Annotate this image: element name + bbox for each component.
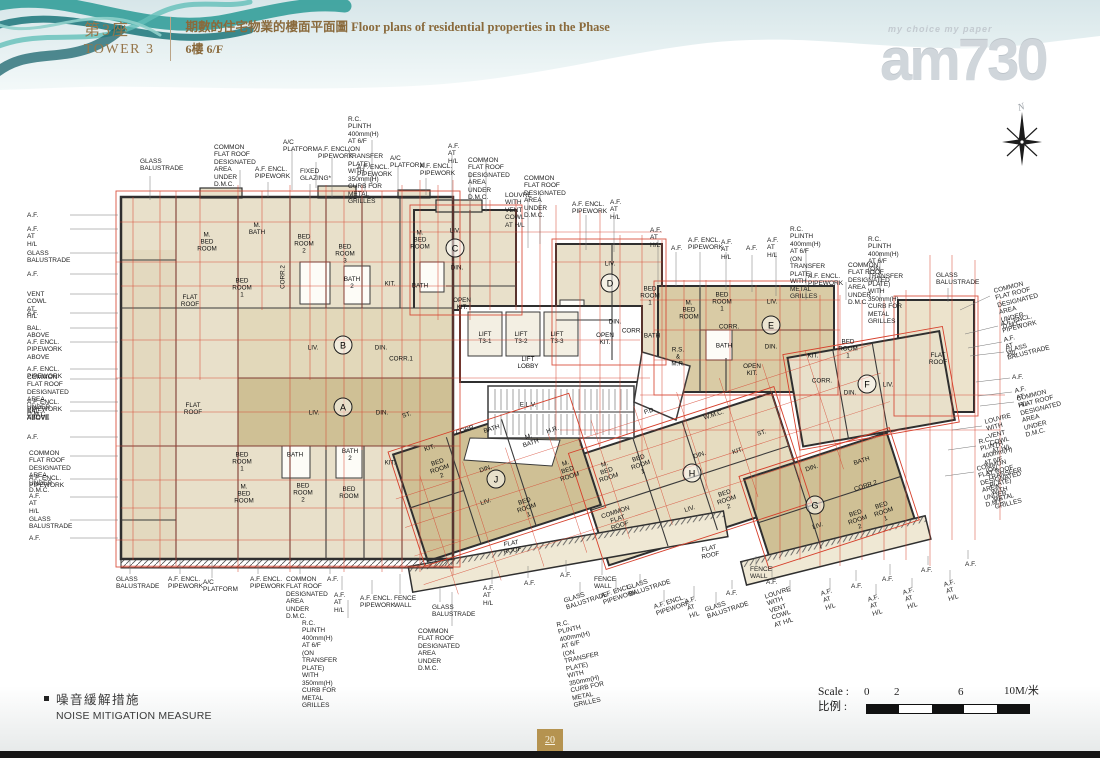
plan-callout-label: R.C. PLINTH 400mm(H) AT 6/F (ON TRANSFER… [348,116,383,206]
room-label: CORR. [719,325,739,332]
room-label: DIN. [765,345,778,352]
room-label: KIT. [808,354,819,361]
plan-callout-label: A.F. ENCL. PIPEWORK [250,576,285,591]
north-compass: N [992,108,1052,170]
noise-legend: 噪音緩解措施 NOISE MITIGATION MEASURE [44,689,212,722]
plan-callout-label: A.F. [726,590,737,597]
scale-tick: 2 [894,686,900,698]
plan-callout-label: A.F. [27,434,38,441]
scale-tick: 6 [958,686,964,698]
unit-label: A [334,398,353,417]
room-label: BED ROOM 1 [232,453,252,474]
header-divider [170,17,171,61]
room-label: DIN. [844,391,857,398]
room-label: BED ROOM 3 [335,245,355,266]
room-label: FLAT ROOF [181,295,199,309]
plan-callout-label: GLASS BALUSTRADE [116,576,159,591]
room-label: M. BATH [249,223,265,237]
unit-label: J [487,470,506,489]
plan-callout-label: COMMON FLAT ROOF DESIGNATED AREA UNDER D… [286,576,328,621]
unit-label: F [858,375,877,394]
plan-callout-label: A.F. [327,576,338,583]
unit-label: E [762,316,781,335]
legend-en: NOISE MITIGATION MEASURE [56,710,212,722]
plan-callout-label: A.F. [965,561,976,568]
plan-callout-label: A.F. [1012,374,1023,381]
unit-label: B [334,336,353,355]
room-label: M. BED ROOM [197,233,217,254]
scale-bar-segments [866,704,1030,714]
plan-callout-label: A.F. [921,567,932,574]
unit-label: C [446,239,465,258]
plan-callout-label: R.C. PLINTH 400mm(H) AT 6/F (ON TRANSFER… [302,620,337,710]
plan-callout-label: A.F. [29,535,40,542]
plan-callout-label: R.C. PLINTH 400mm(H) AT 6/F (ON TRANSFER… [790,226,825,301]
compass-star-icon [992,108,1052,170]
plan-callout-label: FENCE WALL [394,595,416,610]
room-label: BATH 2 [344,277,360,291]
plan-callout-label: BAL. ABOVE [27,408,49,423]
room-label: BED ROOM 2 [293,484,313,505]
room-label: OPEN KIT. [743,364,761,378]
room-label: R.S. & M.R. [671,348,684,369]
plan-callout-label: A.F. [882,576,893,583]
scale-tick: 0 [864,686,870,698]
brochure-page: 第3座 TOWER 3 期數的住宅物業的樓面平面圖 Floor plans of… [0,0,1100,758]
scale-bar: Scale : 0 2 6 10M/米 比例 : [818,684,1030,714]
room-label: CORR. [622,329,642,336]
plan-callout-label: A.F. ENCL. PIPEWORK [29,475,64,490]
plan-callout-label: A.F. ENCL. PIPEWORK [688,237,723,252]
room-label: BED ROOM 1 [640,287,660,308]
room-label: LIFT T3-1 [479,332,492,346]
plan-callout-label: A.F. [746,245,757,252]
plan-callout-label: A/C PLATFORM [283,139,318,154]
room-label: BATH [644,334,660,341]
plan-callout-label: A.F. [524,580,535,587]
room-label: BED ROOM [339,487,359,501]
plan-callout-label: A.F. AT H/L [721,239,732,261]
plan-callout-label: BAL. ABOVE [27,325,49,340]
plan-callout-label: A.F. [27,271,38,278]
tower-title-en: TOWER 3 [84,42,155,58]
room-label: BATH [716,344,732,351]
room-label: LIV. [883,383,894,390]
room-label: OPEN KIT. [596,333,614,347]
room-label: DIN. [376,411,389,418]
plan-callout-label: A.F. [671,245,682,252]
plan-callout-label: A.F. AT H/L [767,237,778,259]
plan-callout-label: A.F. [27,310,38,317]
room-label: KIT. [385,282,396,289]
plan-callout-label: COMMON FLAT ROOF DESIGNATED AREA UNDER D… [418,628,460,673]
room-label: M. BED ROOM [410,231,430,252]
room-label: DIN. [451,266,464,273]
room-label: M. BED ROOM [679,301,699,322]
plan-callout-label: GLASS BALUSTRADE [432,604,475,619]
room-label: CORR. [812,379,832,386]
plan-callout-label: A.F. AT H/L [483,585,494,607]
room-label: LIV. [308,346,319,353]
room-label: LIFT T3-2 [515,332,528,346]
room-label: BED ROOM 1 [838,340,858,361]
footer-bar [0,751,1100,758]
page-number: 20 [537,729,563,751]
room-label: M. BED ROOM [234,485,254,506]
room-label: LIFT LOBBY [518,357,539,371]
room-label: DIN. [375,346,388,353]
scale-label-en: Scale : [818,686,866,698]
unit-label: H [683,464,702,483]
room-label: BATH 2 [342,449,358,463]
plan-callout-label: FIXED GLAZING* [300,168,331,183]
scale-tick: 10M/米 [1004,682,1039,698]
plan-callout-label: A.F. ENCL. PIPEWORK [572,201,607,216]
plan-callout-label: A.F. ENCL. PIPEWORK [808,273,843,288]
room-label: FLAT ROOF [929,353,947,367]
room-label: BED ROOM 1 [232,279,252,300]
unit-label: D [601,274,620,293]
legend-zh: 噪音緩解措施 [56,689,212,708]
plan-callout-label: A.F. ENCL. PIPEWORK [360,595,395,610]
am730-wordmark: am730 [880,34,1046,87]
tower-title-zh: 第3座 [84,16,155,40]
plan-callout-label: A.F. AT H/L [448,143,459,165]
plan-callout-label: COMMON FLAT ROOF DESIGNATED AREA UNDER D… [468,157,510,202]
room-label: LIFT T3-3 [551,332,564,346]
room-label: FLAT ROOF [184,403,202,417]
room-label: LIV. [309,411,320,418]
plan-callout-label: GLASS BALUSTRADE [27,250,70,265]
plan-callout-label: A.F. AT H/L [29,493,40,515]
plan-callout-label: COMMON FLAT ROOF DESIGNATED AREA UNDER D… [214,144,256,189]
page-title: 期數的住宅物業的樓面平面圖 Floor plans of residential… [186,16,610,35]
plan-callout-label: A.F. ENCL. PIPEWORK [255,166,290,181]
header-titles: 期數的住宅物業的樓面平面圖 Floor plans of residential… [186,16,610,57]
plan-callout-label: A.F. [560,572,571,579]
plan-callout-label: GLASS BALUSTRADE [29,516,72,531]
room-label: OPEN KIT. [453,298,471,312]
plan-callout-label: LOUVRE WITH VENT COWL AT H/L [505,192,532,229]
header: 第3座 TOWER 3 期數的住宅物業的樓面平面圖 Floor plans of… [84,16,610,61]
plan-callout-label: A.F. ENCL. PIPEWORK ABOVE [27,339,62,361]
plan-callout-label: A.F. AT H/L [27,226,38,248]
plan-callout-label: A.F. [766,579,777,586]
room-label: BATH [287,453,303,460]
plan-callout-label: A.F. ENCL. PIPEWORK [168,576,203,591]
room-label: LIV. [605,262,616,269]
floor-plan-drawing [0,0,1100,758]
tower-title: 第3座 TOWER 3 [84,16,155,58]
legend-bullet-icon [44,696,49,701]
floor-plan: GLASS BALUSTRADECOMMON FLAT ROOF DESIGNA… [0,0,1100,758]
plan-callout-label: A.F. AT H/L [650,227,661,249]
room-label: LIV. [450,229,461,236]
plan-callout-label: A.F. [851,583,862,590]
room-label: E.L.V. [520,403,537,410]
plan-callout-label: A/C PLATFORM [203,579,238,594]
room-label: DIN. [609,320,622,327]
room-label: LIV. [767,300,778,307]
room-label: CORR.2 [281,265,288,289]
room-label: BATH [412,284,428,291]
plan-callout-label: COMMON FLAT ROOF DESIGNATED AREA UNDER D… [848,262,890,307]
scale-label-zh: 比例 : [818,698,866,714]
scale-ticks: 0 2 6 10M/米 [866,684,1028,698]
room-label: BED ROOM 2 [294,235,314,256]
room-label: CORR.1 [389,357,413,364]
floor-label: 6樓 6/F [186,40,610,57]
plan-callout-label: GLASS BALUSTRADE [936,272,979,287]
plan-callout-label: A.F. AT H/L [334,592,345,614]
plan-callout-label: A.F. ENCL. PIPEWORK [357,164,392,179]
plan-callout-label: A.F. AT H/L [610,199,621,221]
room-label: BED ROOM 1 [712,293,732,314]
room-label: KIT. [385,461,396,468]
plan-callout-label: A.F. [27,212,38,219]
am730-logo: my choice my paper am730 [880,24,1046,87]
unit-label: G [806,496,825,515]
plan-callout-label: GLASS BALUSTRADE [140,158,183,173]
